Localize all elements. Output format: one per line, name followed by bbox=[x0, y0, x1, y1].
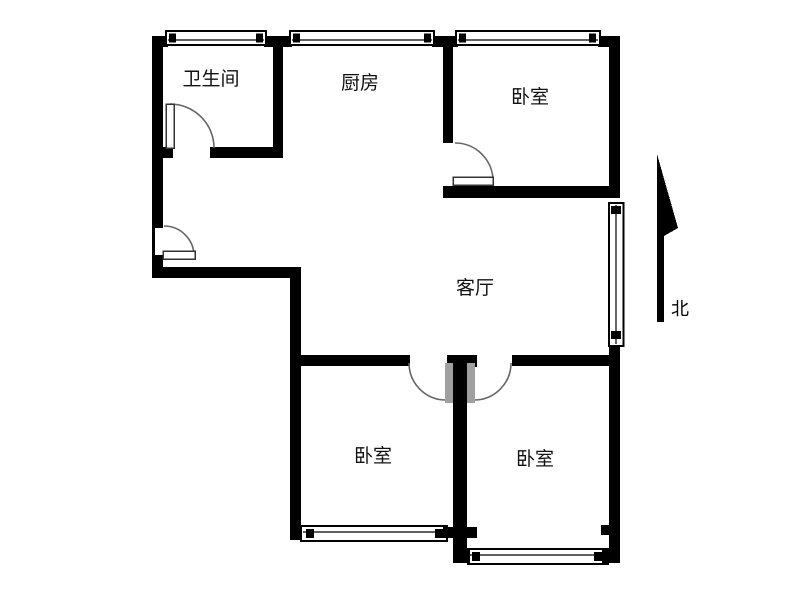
wall bbox=[602, 550, 620, 563]
window-post bbox=[611, 206, 621, 214]
door-leaf bbox=[445, 363, 453, 403]
door-leaf bbox=[467, 363, 475, 403]
window-post bbox=[169, 34, 176, 43]
wall bbox=[453, 550, 470, 563]
door-swing-arc bbox=[409, 363, 446, 400]
window-post bbox=[611, 331, 621, 339]
window-symbol bbox=[290, 31, 434, 45]
room-label-bedroom-northeast: 卧室 bbox=[511, 86, 549, 108]
north-label: 北 bbox=[671, 299, 689, 320]
entry-door bbox=[163, 226, 195, 259]
bedroom-ne-door bbox=[453, 143, 493, 185]
window-post bbox=[435, 529, 443, 538]
wall bbox=[290, 267, 301, 540]
bedroom-sw-door bbox=[409, 363, 453, 403]
window-post bbox=[459, 34, 466, 43]
window-frame bbox=[468, 549, 608, 564]
room-label-living-room: 客厅 bbox=[456, 277, 494, 299]
wall bbox=[609, 36, 620, 198]
room-label-bedroom-southeast: 卧室 bbox=[516, 448, 554, 470]
window-post bbox=[589, 34, 596, 43]
window-post bbox=[293, 34, 300, 43]
window-post bbox=[594, 552, 602, 561]
wall bbox=[152, 36, 163, 228]
wall bbox=[609, 345, 620, 563]
room-label-kitchen: 厨房 bbox=[341, 72, 379, 94]
wall bbox=[443, 36, 453, 143]
door-leaf bbox=[163, 251, 195, 259]
north-compass: 北 bbox=[657, 154, 689, 322]
door-swing-arc bbox=[474, 363, 511, 400]
wall bbox=[273, 36, 283, 158]
window-frame bbox=[456, 31, 600, 45]
bathroom-door bbox=[166, 104, 214, 148]
window-post bbox=[306, 529, 314, 538]
window-frame bbox=[290, 31, 434, 45]
wall bbox=[443, 527, 477, 538]
window-post bbox=[256, 34, 263, 43]
north-arrow-icon bbox=[657, 154, 678, 322]
wall bbox=[290, 355, 410, 366]
window-frame bbox=[166, 31, 266, 45]
window-symbol bbox=[609, 203, 624, 346]
floor-plan: 卫生间 厨房 卧室 客厅 卧室 卧室 北 bbox=[0, 0, 800, 600]
door-leaf bbox=[453, 177, 493, 185]
floor-plan-page: 卫生间 厨房 卧室 客厅 卧室 卧室 北 bbox=[0, 0, 800, 600]
room-label-bedroom-southwest: 卧室 bbox=[354, 445, 392, 467]
wall bbox=[443, 186, 620, 198]
window-post bbox=[424, 34, 431, 43]
walls bbox=[152, 36, 620, 563]
room-label-bathroom: 卫生间 bbox=[182, 68, 239, 90]
wall bbox=[512, 355, 620, 366]
window-post bbox=[472, 552, 480, 561]
door-swing-arc bbox=[455, 143, 493, 181]
window-symbol bbox=[456, 31, 600, 45]
wall bbox=[601, 525, 609, 535]
wall-opening-line bbox=[152, 228, 155, 255]
window-symbol bbox=[166, 31, 266, 45]
wall bbox=[210, 147, 283, 158]
door-swing-arc bbox=[170, 104, 214, 148]
window-frame bbox=[301, 526, 447, 541]
wall bbox=[152, 267, 300, 278]
windows bbox=[166, 31, 624, 564]
window-symbol bbox=[468, 549, 608, 564]
door-leaf bbox=[166, 104, 174, 148]
bedroom-se-door bbox=[467, 363, 511, 403]
window-symbol bbox=[301, 526, 447, 541]
